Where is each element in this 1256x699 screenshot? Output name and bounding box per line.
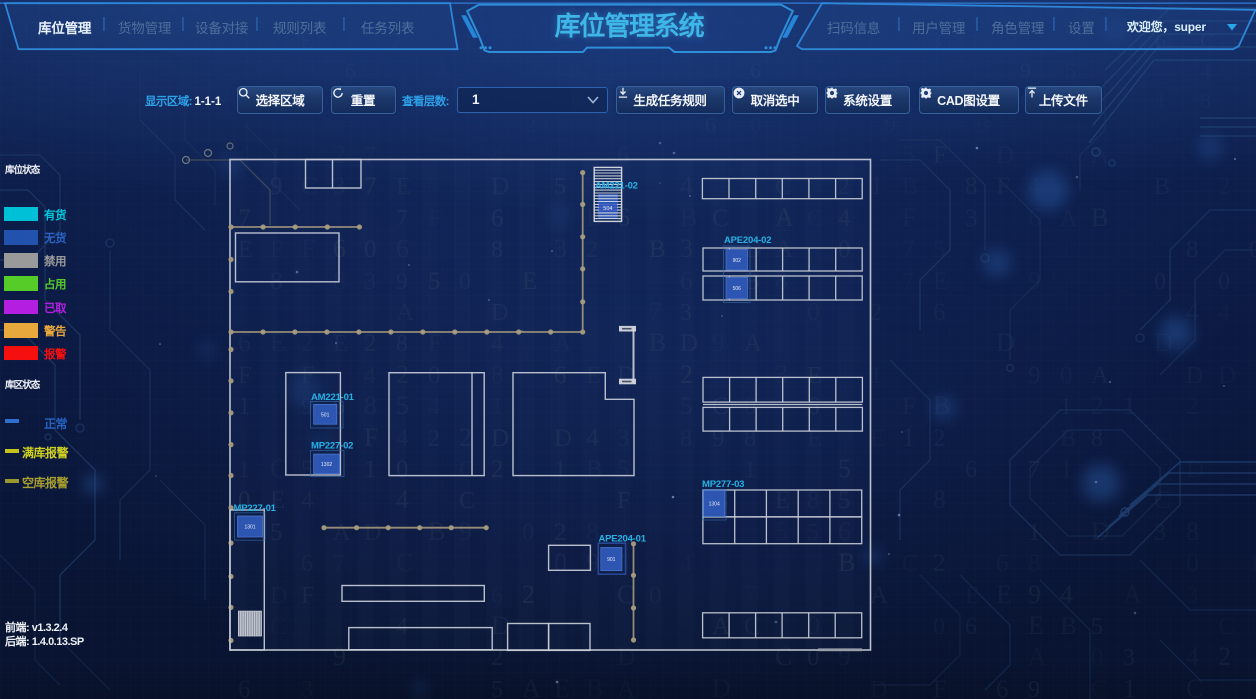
svg-text:MP227-01: MP227-01 — [234, 503, 277, 514]
svg-text:MP227-02: MP227-02 — [311, 441, 353, 452]
svg-text:506: 506 — [733, 286, 742, 292]
svg-text:1301: 1301 — [244, 525, 255, 531]
svg-text:504: 504 — [603, 206, 612, 212]
svg-text:1304: 1304 — [709, 502, 720, 508]
svg-text:501: 501 — [321, 412, 330, 418]
svg-text:AM221-02: AM221-02 — [595, 181, 638, 192]
svg-text:901: 901 — [607, 557, 616, 563]
svg-text:MP277-03: MP277-03 — [702, 479, 744, 490]
svg-text:APE204-02: APE204-02 — [724, 235, 771, 246]
svg-text:902: 902 — [733, 258, 742, 264]
svg-text:1302: 1302 — [321, 462, 332, 468]
